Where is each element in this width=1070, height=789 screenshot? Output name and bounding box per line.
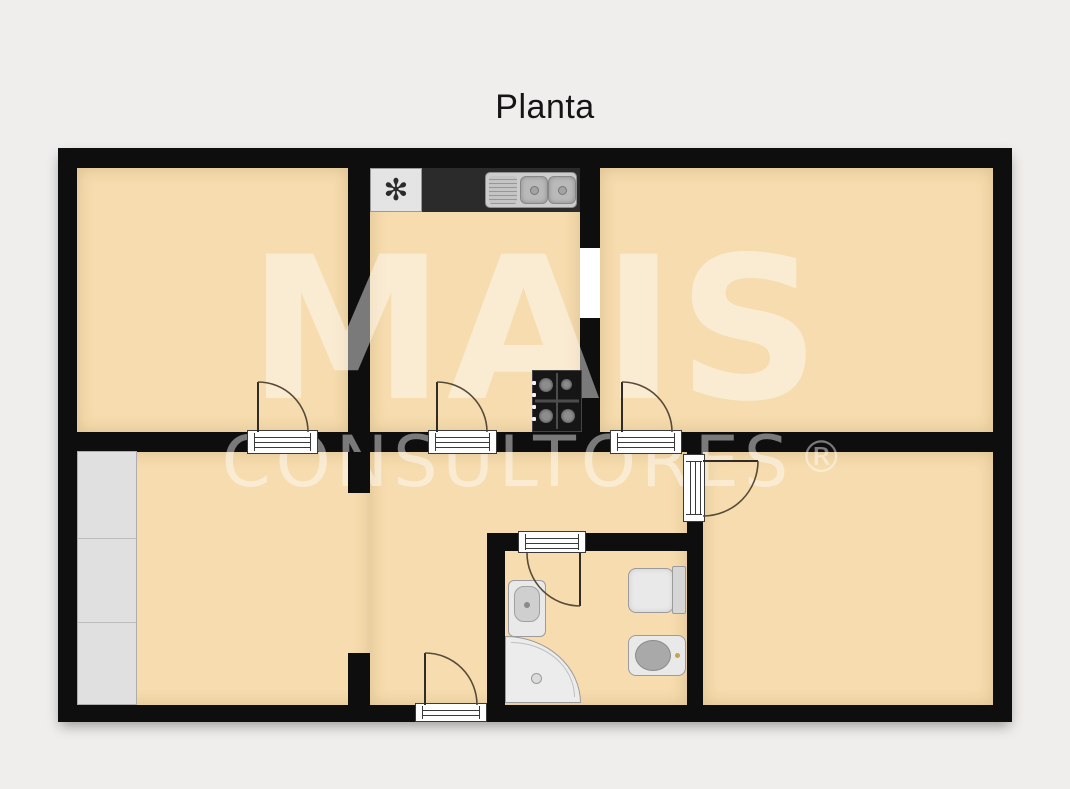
washbasin-drain [524, 602, 530, 608]
bathroom-wall-top-left [487, 533, 520, 551]
stove-burner [539, 409, 553, 423]
wardrobe-divider [78, 538, 136, 539]
bidet-icon [628, 635, 686, 676]
page-title: Planta [0, 88, 1070, 127]
door-threshold-room-bottom-right [683, 454, 705, 522]
wall-opening-kitchen [580, 248, 600, 318]
floorplan-page: { "title": "Planta", "watermark": { "lin… [0, 0, 1070, 789]
wall-stub-hall-lower [348, 653, 370, 705]
room-top-left [77, 168, 348, 432]
toilet-tank [672, 566, 686, 614]
stove-burner [539, 378, 553, 392]
door-threshold-entrance [415, 703, 487, 722]
wardrobe-divider [78, 622, 136, 623]
bathroom-wall-top-right [586, 533, 687, 551]
threshold-lines [422, 706, 480, 719]
door-threshold-bathroom [518, 531, 586, 553]
sink-drain [558, 186, 567, 195]
bathroom-wall-left [487, 533, 505, 705]
floorplan: MAIS CONSULTORES® ✻ [58, 148, 1012, 722]
bidet-bowl [635, 640, 671, 671]
kitchen-sink-icon [485, 172, 577, 208]
threshold-lines [617, 433, 675, 451]
door-threshold-kitchen [428, 430, 497, 454]
room-top-right [600, 168, 993, 432]
stove-burner [561, 409, 575, 423]
threshold-lines [435, 433, 490, 451]
door-threshold-room-top-right [610, 430, 682, 454]
washbasin-icon [508, 580, 546, 637]
bidet-tap [675, 653, 680, 658]
sink-drain [530, 186, 539, 195]
wall-stub-hall-upper [348, 452, 370, 493]
sink-basin-left [520, 176, 548, 204]
threshold-lines [525, 534, 579, 550]
sink-basin-right [548, 176, 576, 204]
stove-knob [532, 381, 536, 385]
toilet-icon [628, 568, 674, 613]
room-bottom-right [703, 452, 993, 705]
extractor-fan-icon: ✻ [370, 168, 422, 212]
sink-drainboard [489, 176, 517, 204]
stove-knob [532, 405, 536, 409]
stove-knob [532, 393, 536, 397]
threshold-lines [254, 433, 311, 451]
door-threshold-room-top-left [247, 430, 318, 454]
threshold-lines [686, 461, 702, 515]
gas-stove-icon [532, 370, 582, 432]
stove-knob [532, 417, 536, 421]
stove-burner [561, 379, 572, 390]
wardrobe-icon [77, 451, 137, 705]
